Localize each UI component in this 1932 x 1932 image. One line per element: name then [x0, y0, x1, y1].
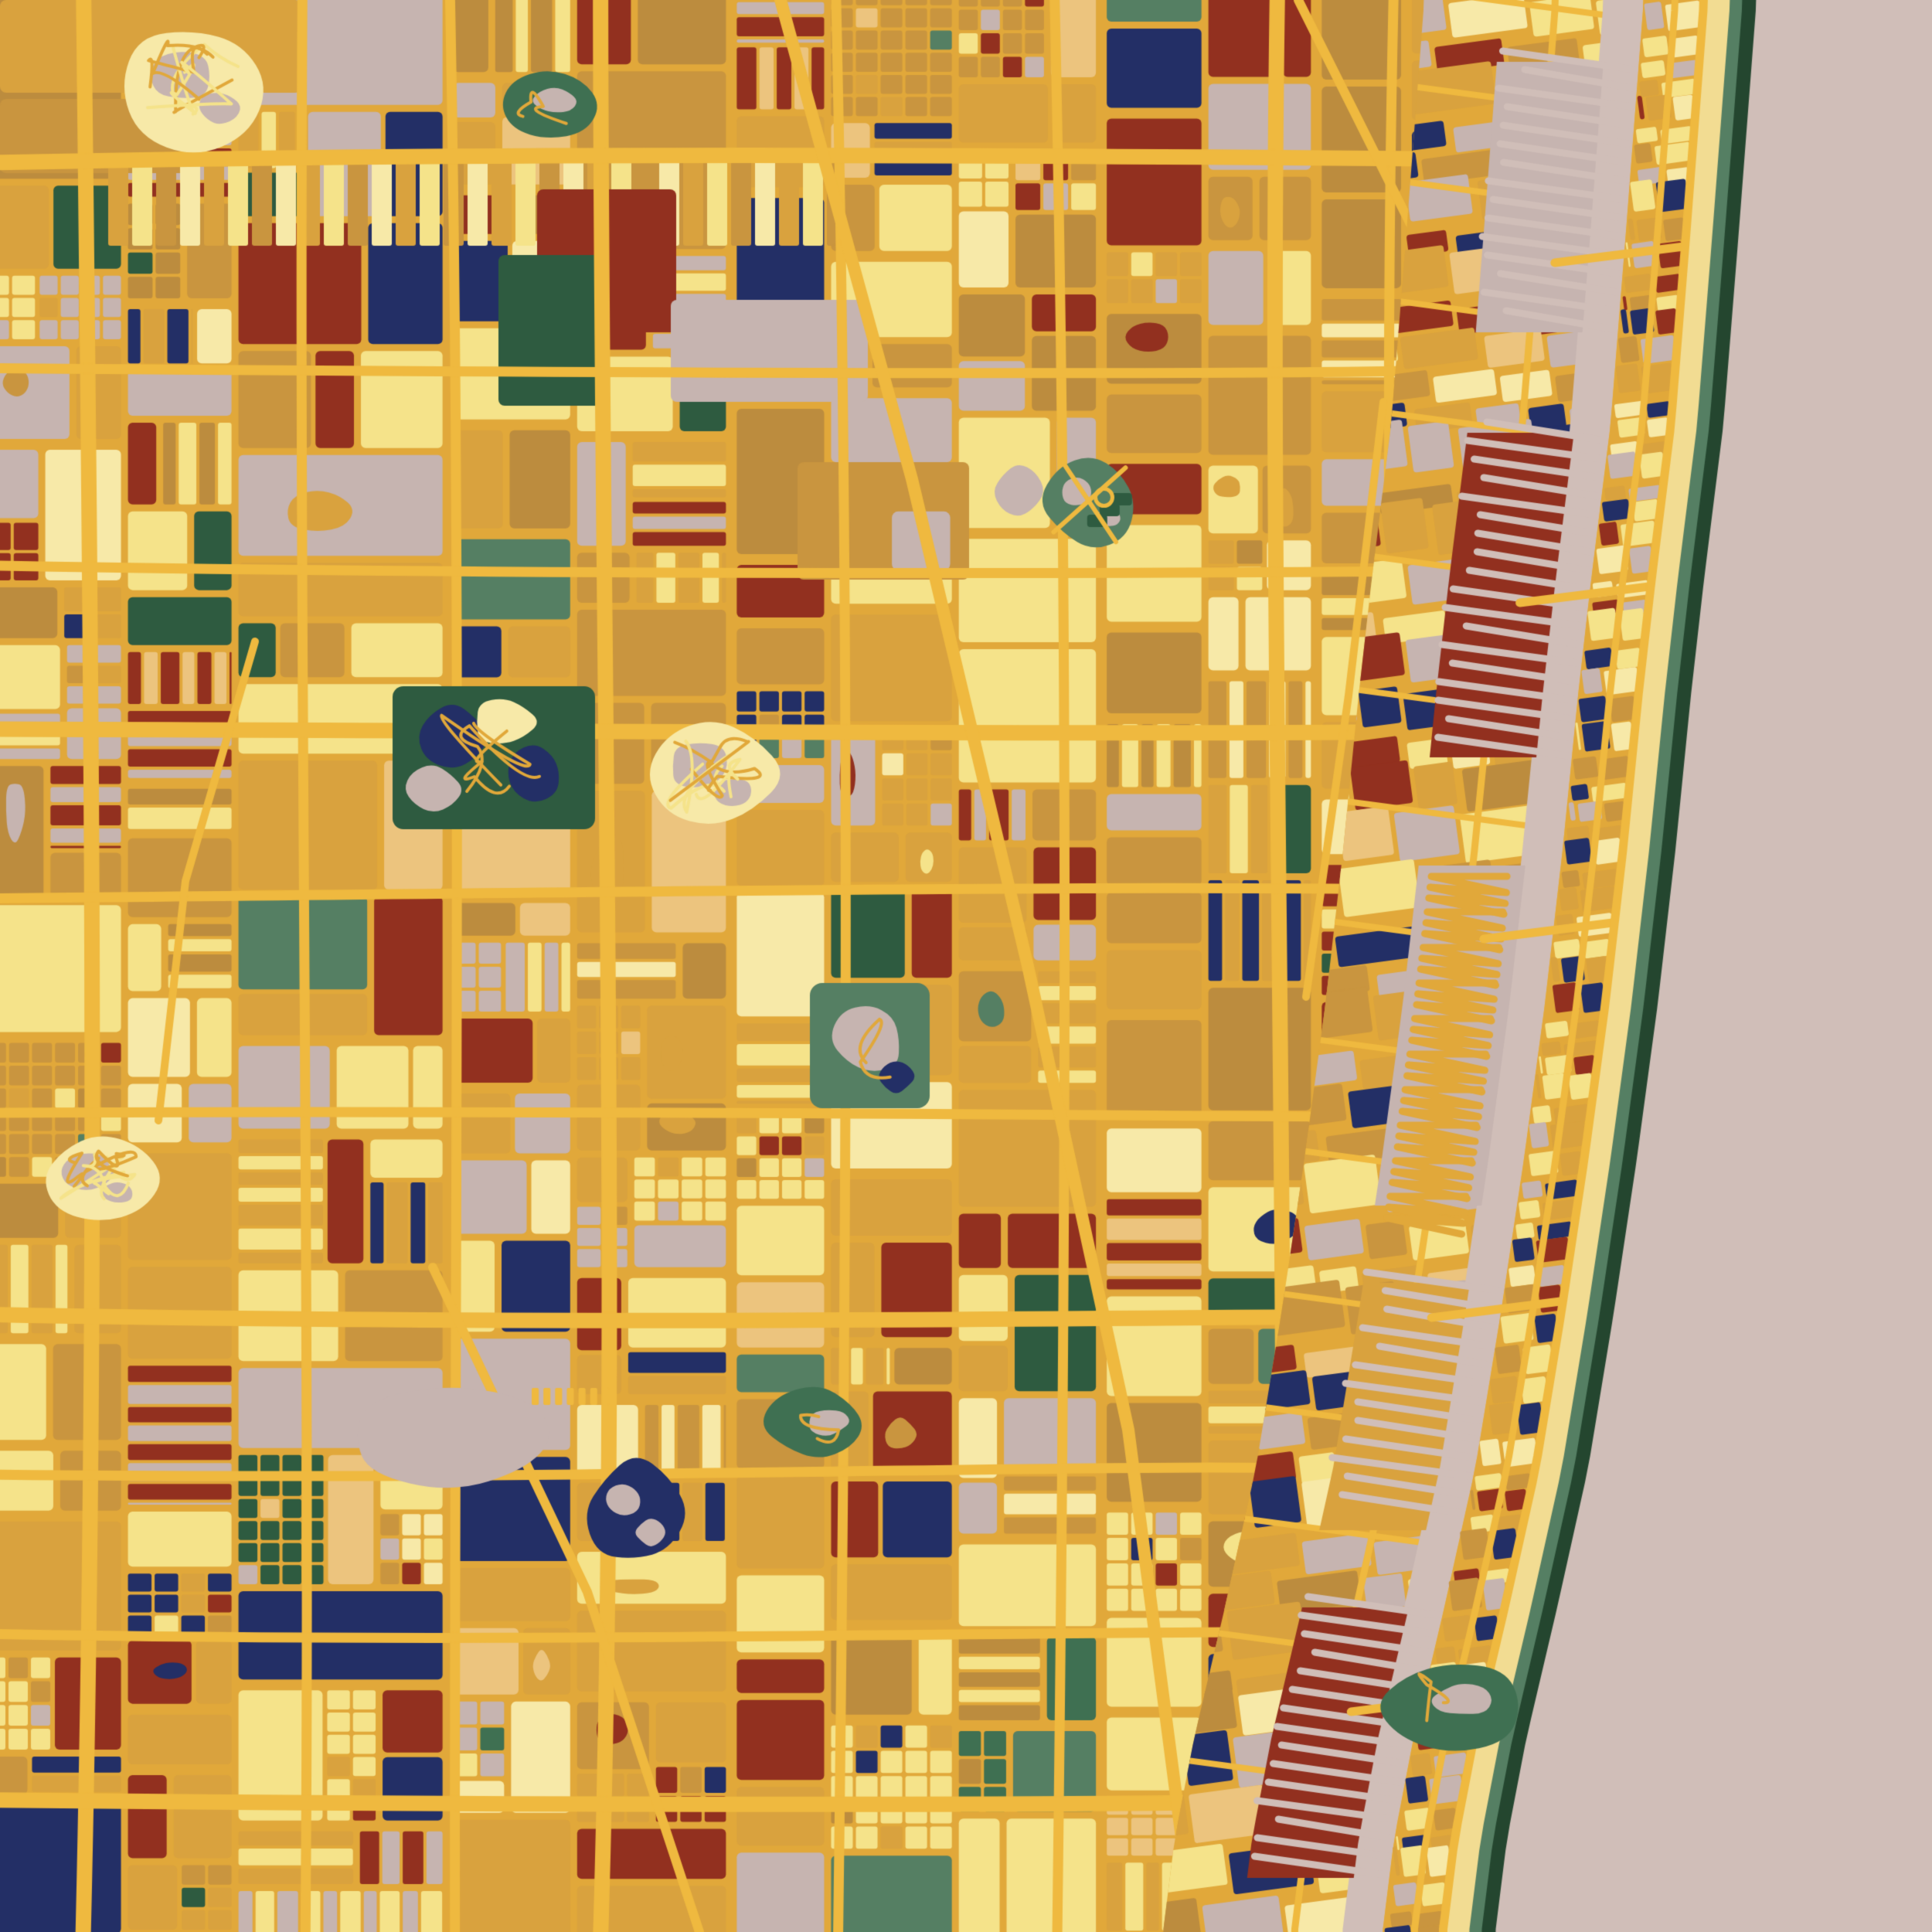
map-viewport [0, 0, 1932, 1932]
stylized-city-map [0, 0, 1932, 1932]
